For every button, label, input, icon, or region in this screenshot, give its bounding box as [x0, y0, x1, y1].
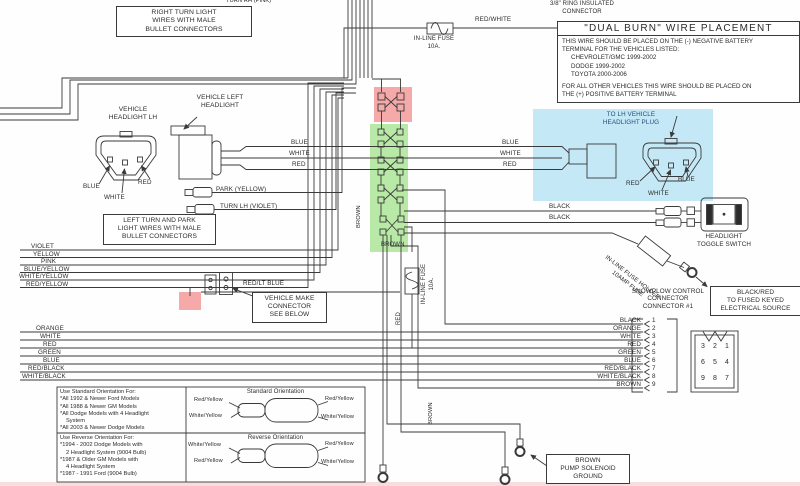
inline-fuse-label: IN-LINE FUSE10A.: [404, 36, 464, 51]
dual-burn-title: "DUAL BURN" WIRE PLACEMENT: [558, 22, 799, 36]
wire-label-green: GREEN: [38, 349, 61, 357]
toggle-switch-icon: [701, 198, 748, 231]
park-wire-label: PARK (YELLOW): [216, 186, 266, 194]
plug-pin-red-label: RED: [138, 179, 152, 187]
wire-label-white: WHITE: [40, 333, 61, 341]
orientation-diagram-reverse: [229, 444, 328, 468]
std-tr-label: Red/Yellow: [325, 396, 354, 403]
orientation-diagram-standard: [229, 399, 328, 423]
reverse-orientation-list: Use Reverse Orientation For: *1994 - 200…: [60, 435, 184, 479]
fuse-holder-icon: [404, 233, 707, 287]
row-label: RED: [560, 341, 641, 349]
highlight-red-connector: [374, 87, 412, 122]
pin-number: 2: [652, 325, 656, 333]
keyed-source-note-box: BLACK/REDTO FUSED KEYEDELECTRICAL SOURCE: [710, 286, 800, 316]
pin-number: 6: [652, 357, 656, 365]
pump-ground-arrow: [531, 455, 547, 466]
row-label: WHITE/BLACK: [560, 373, 641, 381]
row-label: WHITE: [560, 333, 641, 341]
snowplow-heading: SNOWPLOW CONTROLCONNECTORCONNECTOR #1: [618, 288, 718, 310]
pin-number: 8: [652, 373, 656, 381]
std-br-label: White/Yellow: [321, 414, 354, 421]
rev-br-label: White/Yellow: [321, 459, 354, 466]
rev-bl-label: Red/Yellow: [194, 458, 223, 465]
red-lt-blue-label: RED/LT BLUE: [243, 280, 284, 288]
pin-face-grid: 321 654 987: [697, 338, 733, 386]
highlight-green-strip: [370, 124, 408, 252]
bullet-connector-icon: [185, 190, 193, 196]
vehicle-make-note-box: VEHICLE MAKECONNECTORSEE BELOW: [252, 292, 327, 323]
wire-label-red-black: RED/BLACK: [28, 365, 65, 373]
rh-plug-pin-red-label: RED: [626, 180, 640, 188]
row-label: ORANGE: [560, 325, 641, 333]
pin-number: 7: [652, 365, 656, 373]
stack2-wires: [20, 332, 643, 380]
plug-pin-white-label: WHITE: [104, 194, 125, 202]
to-lh-plug-label: TO LH VEHICLEHEADLIGHT PLUG: [587, 111, 675, 127]
row-label: BLUE: [560, 357, 641, 365]
plug-pin-blue-label: BLUE: [83, 183, 100, 191]
rev-tr-label: Red/Yellow: [325, 441, 354, 448]
std-bl-label: White/Yellow: [189, 413, 222, 420]
fan-wires: [0, 78, 356, 120]
row-label: BROWN: [560, 381, 641, 389]
turn-wire-label: TURN LH (VIOLET): [220, 203, 277, 211]
toggle-switch-label: HEADLIGHTTOGGLE SWITCH: [692, 233, 756, 249]
pump-ground-note-box: BROWNPUMP SOLENOIDGROUND: [546, 454, 630, 484]
trunk-blue-label-left: BLUE: [291, 139, 308, 147]
inline-fuse-vertical-label: IN-LINE FUSE10A.: [421, 253, 436, 315]
trunk-white-label-right: WHITE: [500, 150, 521, 158]
vehicle-headlight-lh-label: VEHICLEHEADLIGHT LH: [98, 106, 168, 122]
ring-terminal-icon: [379, 439, 525, 484]
dual-burn-note-box: "DUAL BURN" WIRE PLACEMENT THIS WIRE SHO…: [557, 21, 800, 103]
wire-label-red-yellow: RED/YELLOW: [26, 281, 68, 289]
inline-fuse-vertical-icon: [405, 268, 419, 294]
headlight-connector-icon: [171, 117, 221, 179]
trunk-red-label-right: RED: [503, 161, 517, 169]
brown-bottom-label: BROWN: [381, 242, 405, 250]
right-turn-note-box: RIGHT TURN LIGHT WIRES WITH MALE BULLET …: [116, 6, 252, 37]
brown-vertical-label: BROWN: [356, 205, 363, 228]
rh-plug-pin-blue-label: BLUE: [678, 176, 695, 184]
bullet-connector-icon: [187, 207, 195, 213]
bottom-tint-strip: [0, 482, 800, 486]
wire-label-white-black: WHITE/BLACK: [22, 373, 66, 381]
row-label: BLACK: [560, 317, 641, 325]
wiring-diagram: TURN RH (PINK) RIGHT TURN LIGHT WIRES WI…: [0, 0, 800, 486]
standard-orientation-list: Use Standard Orientation For: *All 1992 …: [60, 389, 184, 433]
pin-number: 4: [652, 341, 656, 349]
vehicle-left-headlight-label: VEHICLE LEFTHEADLIGHT: [182, 94, 258, 110]
pin-number: 3: [652, 333, 656, 341]
left-turn-note-box: LEFT TURN AND PARKLIGHT WIRES WITH MALEB…: [103, 214, 216, 245]
pin-number: 5: [652, 349, 656, 357]
red-white-wire-label: RED/WHITE: [475, 16, 511, 24]
rh-plug-pin-white-label: WHITE: [648, 190, 669, 198]
trunk-white-label-left: WHITE: [289, 150, 310, 158]
brown-vertical-label-2: BROWN: [428, 402, 435, 425]
inline-fuse-icon: [427, 23, 453, 35]
black-wire-label-1: BLACK: [549, 203, 570, 211]
cut-off-text: TURN RH (PINK): [226, 0, 271, 4]
trunk-red-label-left: RED: [292, 161, 306, 169]
row-label: RED/BLACK: [560, 365, 641, 373]
wire-label-blue: BLUE: [43, 357, 60, 365]
stack1-wires: [20, 83, 400, 296]
ring-connector-label: 3/8" RING INSULATEDCONNECTOR: [536, 1, 628, 16]
row-label: GREEN: [560, 349, 641, 357]
pin-number: 9: [652, 381, 656, 389]
wire-label-orange: ORANGE: [36, 325, 64, 333]
red-vertical-label: RED: [396, 312, 404, 325]
std-tl-label: Red/Yellow: [194, 397, 223, 404]
wire-label-red: RED: [43, 341, 57, 349]
pin-number: 1: [652, 317, 656, 325]
black-wire-label-2: BLACK: [549, 214, 570, 222]
rev-tl-label: White/Yellow: [188, 442, 221, 449]
trunk-blue-label-right: BLUE: [502, 139, 519, 147]
